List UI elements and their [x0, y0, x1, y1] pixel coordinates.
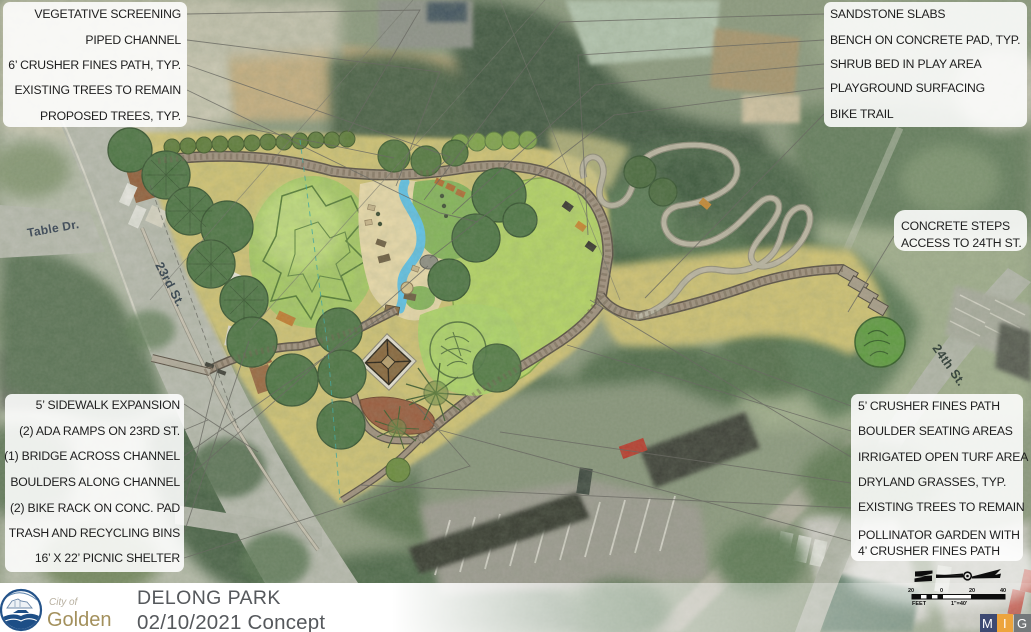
svg-text:PLAYGROUND SURFACING: PLAYGROUND SURFACING	[830, 81, 985, 95]
svg-text:M: M	[982, 616, 993, 631]
svg-text:1"=40': 1"=40'	[951, 601, 968, 607]
svg-text:DRYLAND GRASSES, TYP.: DRYLAND GRASSES, TYP.	[858, 475, 1006, 489]
svg-text:BOULDER SEATING AREAS: BOULDER SEATING AREAS	[858, 424, 1013, 438]
svg-text:PROPOSED TREES, TYP.: PROPOSED TREES, TYP.	[40, 109, 181, 123]
svg-text:DELONG PARK: DELONG PARK	[137, 587, 281, 609]
svg-text:SHRUB BED IN PLAY AREA: SHRUB BED IN PLAY AREA	[830, 57, 983, 71]
svg-text:City of: City of	[49, 597, 79, 608]
svg-text:TRASH AND RECYCLING BINS: TRASH AND RECYCLING BINS	[9, 526, 180, 540]
svg-text:5’ SIDEWALK EXPANSION: 5’ SIDEWALK EXPANSION	[36, 398, 180, 412]
svg-text:20: 20	[908, 588, 914, 594]
svg-text:FEET: FEET	[912, 601, 927, 607]
svg-text:I: I	[1003, 616, 1007, 631]
svg-text:40: 40	[1000, 588, 1006, 594]
svg-text:4’ CRUSHER FINES PATH: 4’ CRUSHER FINES PATH	[858, 544, 1000, 558]
svg-text:SANDSTONE SLABS: SANDSTONE SLABS	[830, 7, 945, 21]
svg-text:EXISTING TREES TO REMAIN: EXISTING TREES TO REMAIN	[858, 500, 1025, 514]
svg-text:Golden: Golden	[47, 609, 112, 631]
svg-text:16’ X 22’ PICNIC SHELTER: 16’ X 22’ PICNIC SHELTER	[35, 551, 181, 565]
svg-text:20: 20	[969, 588, 975, 594]
svg-text:BOULDERS ALONG CHANNEL: BOULDERS ALONG CHANNEL	[10, 475, 180, 489]
svg-text:POLLINATOR GARDEN WITH: POLLINATOR GARDEN WITH	[858, 528, 1020, 542]
svg-text:EXISTING TREES TO REMAIN: EXISTING TREES TO REMAIN	[14, 83, 181, 97]
svg-text:BENCH ON CONCRETE PAD, TYP.: BENCH ON CONCRETE PAD, TYP.	[830, 33, 1020, 47]
svg-text:0: 0	[940, 588, 943, 594]
svg-text:6’ CRUSHER FINES PATH, TYP.: 6’ CRUSHER FINES PATH, TYP.	[8, 58, 181, 72]
svg-text:5’ CRUSHER FINES PATH: 5’ CRUSHER FINES PATH	[858, 399, 1000, 413]
svg-text:(2) BIKE RACK ON CONC. PAD: (2) BIKE RACK ON CONC. PAD	[10, 501, 180, 515]
svg-text:PIPED CHANNEL: PIPED CHANNEL	[85, 33, 181, 47]
svg-text:VEGETATIVE SCREENING: VEGETATIVE SCREENING	[34, 7, 181, 21]
svg-text:CONCRETE STEPS: CONCRETE STEPS	[901, 219, 1010, 233]
svg-text:(2) ADA RAMPS ON 23RD ST.: (2) ADA RAMPS ON 23RD ST.	[19, 424, 180, 438]
svg-text:(1) BRIDGE ACROSS CHANNEL: (1) BRIDGE ACROSS CHANNEL	[4, 449, 180, 463]
svg-text:G: G	[1017, 616, 1027, 631]
svg-text:IRRIGATED OPEN TURF AREA: IRRIGATED OPEN TURF AREA	[858, 450, 1029, 464]
svg-text:BIKE TRAIL: BIKE TRAIL	[830, 107, 894, 121]
svg-text:02/10/2021 Concept: 02/10/2021 Concept	[137, 611, 325, 632]
svg-text:ACCESS TO 24TH ST.: ACCESS TO 24TH ST.	[901, 236, 1022, 250]
